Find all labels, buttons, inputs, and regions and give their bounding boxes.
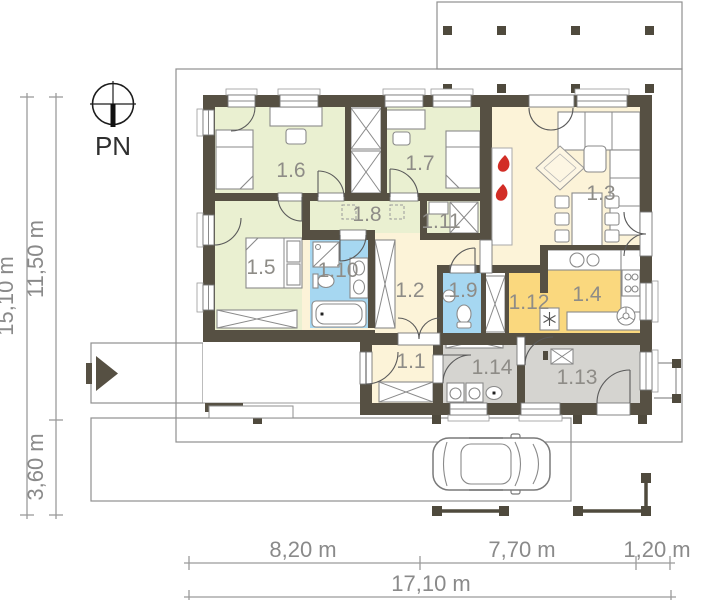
room-label-1-6: 1.6: [276, 159, 305, 182]
window: [197, 283, 214, 312]
window: [431, 89, 473, 107]
post-icon: [641, 506, 651, 516]
compass-label: PN: [95, 131, 131, 161]
post-icon: [432, 415, 441, 424]
post-icon: [499, 506, 509, 516]
window: [383, 89, 425, 107]
wardrobe-icon: [485, 276, 505, 332]
post-icon: [432, 506, 442, 516]
compass-icon: [90, 81, 136, 127]
room-label-1-11: 1.11: [421, 210, 460, 233]
room-label-1-13: 1.13: [557, 366, 598, 389]
room-label-1-3: 1.3: [586, 182, 615, 205]
room-label-1-8: 1.8: [352, 203, 381, 226]
room-label-1-5: 1.5: [246, 256, 275, 279]
armchair-icon: [584, 146, 606, 172]
sink-icon: [486, 387, 502, 400]
bed-icon: [446, 131, 480, 188]
post-icon: [497, 84, 506, 93]
bed-icon: [216, 130, 253, 189]
window: [519, 403, 562, 421]
fireplace-icon: [492, 148, 512, 245]
post-icon: [573, 415, 582, 424]
dim-label-vertical-total: 15,10 m: [0, 256, 18, 336]
bathtub-icon: [312, 301, 366, 327]
room-label-1-7: 1.7: [405, 152, 434, 175]
room-label-1-4: 1.4: [572, 283, 602, 306]
wardrobe-icon: [351, 108, 381, 193]
passage-opening: [480, 240, 492, 273]
dim-label-vertical-house: 11,50 m: [23, 220, 48, 298]
room-label-1-9: 1.9: [448, 279, 477, 302]
terrace-outline: [437, 2, 682, 69]
entry-step: [205, 403, 293, 418]
dim-label-bottom-mid: 7,70 m: [488, 537, 555, 562]
window: [278, 89, 320, 107]
post-icon: [672, 359, 681, 368]
boiler-icon: [617, 307, 635, 325]
dryer-icon: [466, 383, 483, 402]
porch-area: [203, 342, 360, 403]
dim-label-vertical-drive: 3,60 m: [23, 433, 48, 500]
window: [448, 403, 489, 421]
floor-plan-page: PN 1.1 1.2 1.3 1.4 1.5 1.6 1.7 1.8 1.9 1…: [0, 0, 702, 600]
post-icon: [645, 26, 654, 35]
post-icon: [571, 26, 580, 35]
post-icon: [573, 506, 583, 516]
window: [640, 281, 658, 322]
dim-label-bottom-total: 17,10 m: [391, 571, 471, 596]
post-icon: [645, 84, 654, 93]
post-icon: [497, 26, 506, 35]
wardrobe-icon: [379, 382, 433, 402]
window: [575, 89, 629, 107]
post-icon: [638, 415, 647, 424]
post-icon: [443, 26, 452, 35]
room-label-1-12: 1.12: [509, 291, 550, 314]
dim-label-bottom-left: 8,20 m: [269, 537, 336, 562]
post-icon: [672, 394, 681, 403]
toilet-icon: [457, 305, 471, 328]
car-icon: [433, 434, 550, 494]
window: [640, 350, 658, 392]
room-label-1-10: 1.10: [318, 259, 359, 282]
room-label-1-2: 1.2: [395, 279, 424, 302]
window: [197, 109, 214, 136]
wardrobe-icon: [217, 310, 297, 328]
stove-icon: [622, 270, 640, 296]
dim-label-bottom-right: 1,20 m: [623, 537, 690, 562]
room-label-1-14: 1.14: [472, 356, 513, 379]
wardrobe-icon: [375, 240, 395, 328]
washer-icon: [447, 383, 464, 402]
floor-plan-canvas: PN 1.1 1.2 1.3 1.4 1.5 1.6 1.7 1.8 1.9 1…: [0, 0, 702, 600]
post-icon: [641, 473, 651, 483]
room-label-1-1: 1.1: [396, 350, 425, 373]
